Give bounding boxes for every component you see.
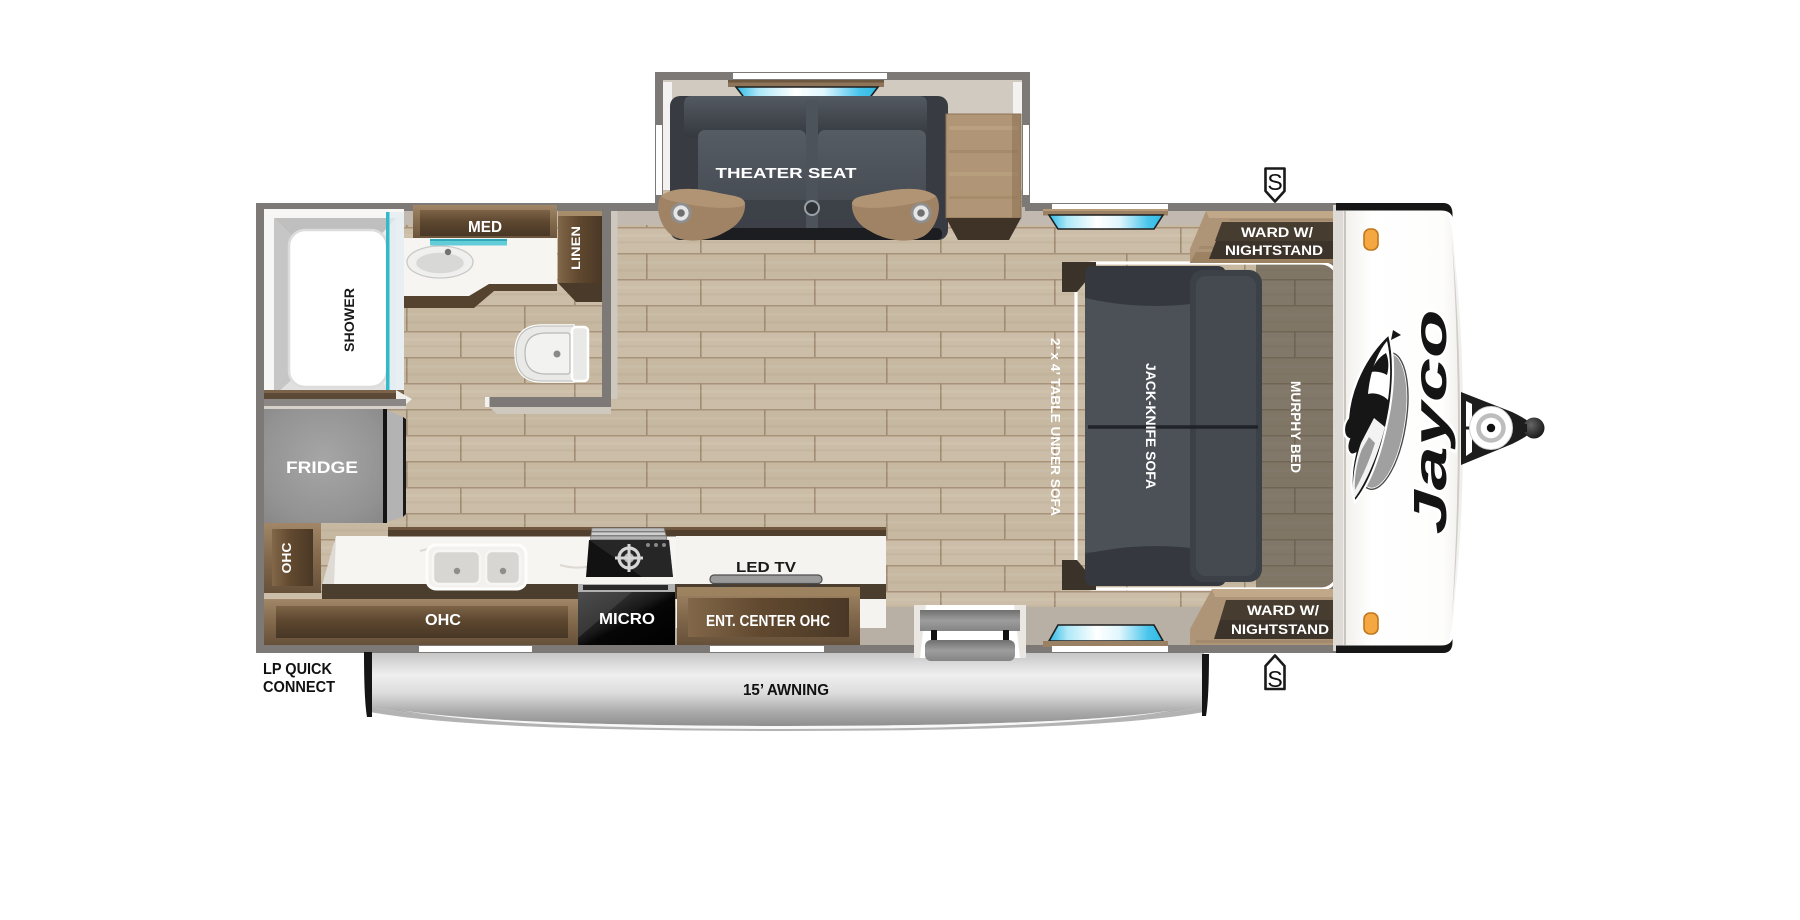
svg-text:FRIDGE: FRIDGE [286, 459, 358, 477]
svg-text:2’ x 4’ TABLE UNDER SOFA: 2’ x 4’ TABLE UNDER SOFA [1048, 338, 1062, 516]
svg-text:S: S [1267, 666, 1282, 692]
svg-text:THEATER SEAT: THEATER SEAT [716, 165, 857, 182]
svg-text:NIGHTSTAND: NIGHTSTAND [1225, 243, 1323, 258]
svg-text:SHOWER: SHOWER [342, 288, 357, 352]
svg-text:NIGHTSTAND: NIGHTSTAND [1231, 622, 1329, 637]
svg-text:LP QUICK: LP QUICK [263, 661, 333, 678]
svg-text:15’ AWNING: 15’ AWNING [743, 682, 829, 699]
svg-text:Jayco: Jayco [1404, 310, 1456, 535]
svg-text:WARD W/: WARD W/ [1247, 603, 1319, 618]
svg-text:JACK-KNIFE SOFA: JACK-KNIFE SOFA [1143, 363, 1158, 489]
svg-text:S: S [1267, 169, 1282, 195]
svg-text:ENT. CENTER OHC: ENT. CENTER OHC [706, 613, 830, 630]
svg-text:OHC: OHC [425, 612, 461, 629]
svg-text:MICRO: MICRO [599, 611, 655, 628]
svg-text:MED: MED [468, 219, 502, 236]
svg-text:LED TV: LED TV [736, 559, 796, 576]
svg-text:WARD W/: WARD W/ [1241, 225, 1313, 240]
svg-text:OHC: OHC [279, 542, 294, 574]
svg-text:MURPHY BED: MURPHY BED [1288, 381, 1303, 473]
svg-text:LINEN: LINEN [569, 226, 583, 270]
svg-text:CONNECT: CONNECT [263, 679, 335, 696]
